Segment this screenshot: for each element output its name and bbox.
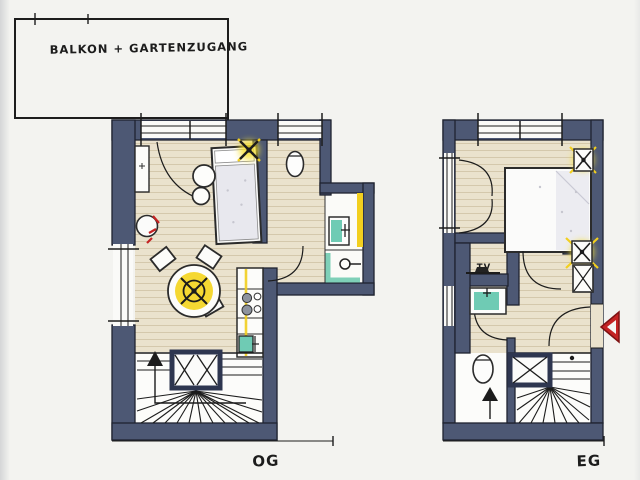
eg-toilet (473, 355, 493, 383)
balcony-label: BALKON + GARTENZUGANG (50, 39, 249, 56)
eg-lamp-top-icon (570, 147, 596, 173)
eg-shaft-column (573, 265, 593, 292)
og-side-table (193, 165, 215, 187)
eg-bed-duvet (556, 171, 589, 250)
og-stair-shaft (172, 352, 220, 388)
tv-icon (475, 267, 489, 272)
shower-head-icon (340, 259, 350, 269)
og-kitchen-sink (239, 336, 253, 352)
og-bed-duvet (215, 164, 258, 241)
eg-plan-label: EG (576, 452, 601, 471)
eg-washbasin (470, 288, 506, 314)
floor-plan-eg: TV (439, 113, 619, 470)
floor-plan-og: OG (108, 113, 374, 470)
sketch-svg: BALKON + GARTENZUGANG (0, 0, 640, 480)
eg-lamp-mid-icon (566, 238, 598, 268)
eg-entrance-arrow-icon (601, 312, 619, 342)
og-side-table-small (193, 188, 210, 205)
og-bath-accent-strip (357, 193, 363, 247)
og-toilet (287, 152, 304, 177)
og-kitchen (237, 268, 263, 357)
og-sideboard (135, 146, 149, 192)
floor-plan-sketch: BALKON + GARTENZUGANG (0, 0, 640, 480)
og-bed-ceiling-lamp-icon (238, 139, 260, 161)
og-washbasin (329, 217, 350, 245)
og-plan-label: OG (252, 452, 280, 471)
eg-bed (505, 168, 591, 252)
og-bed (211, 146, 261, 244)
balcony-box (15, 19, 228, 118)
balcony-annotation: BALKON + GARTENZUGANG (15, 13, 248, 124)
